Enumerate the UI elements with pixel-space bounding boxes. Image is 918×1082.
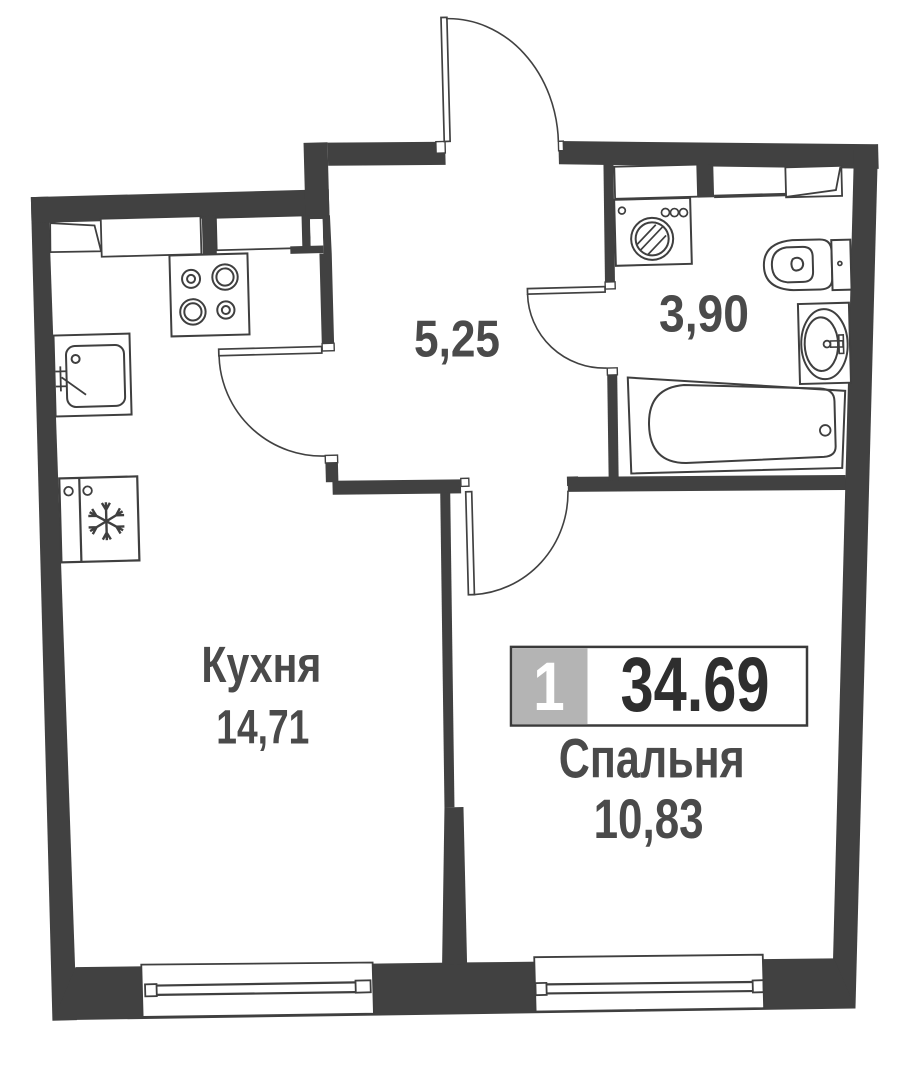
svg-text:14,71: 14,71: [216, 702, 309, 755]
svg-text:Спальня: Спальня: [559, 726, 745, 789]
svg-text:1: 1: [533, 649, 564, 726]
svg-text:3,90: 3,90: [659, 286, 749, 344]
svg-text:Кухня: Кухня: [201, 636, 321, 693]
svg-text:5,25: 5,25: [414, 311, 500, 369]
svg-text:10,83: 10,83: [594, 787, 704, 850]
svg-text:34.69: 34.69: [621, 642, 770, 728]
